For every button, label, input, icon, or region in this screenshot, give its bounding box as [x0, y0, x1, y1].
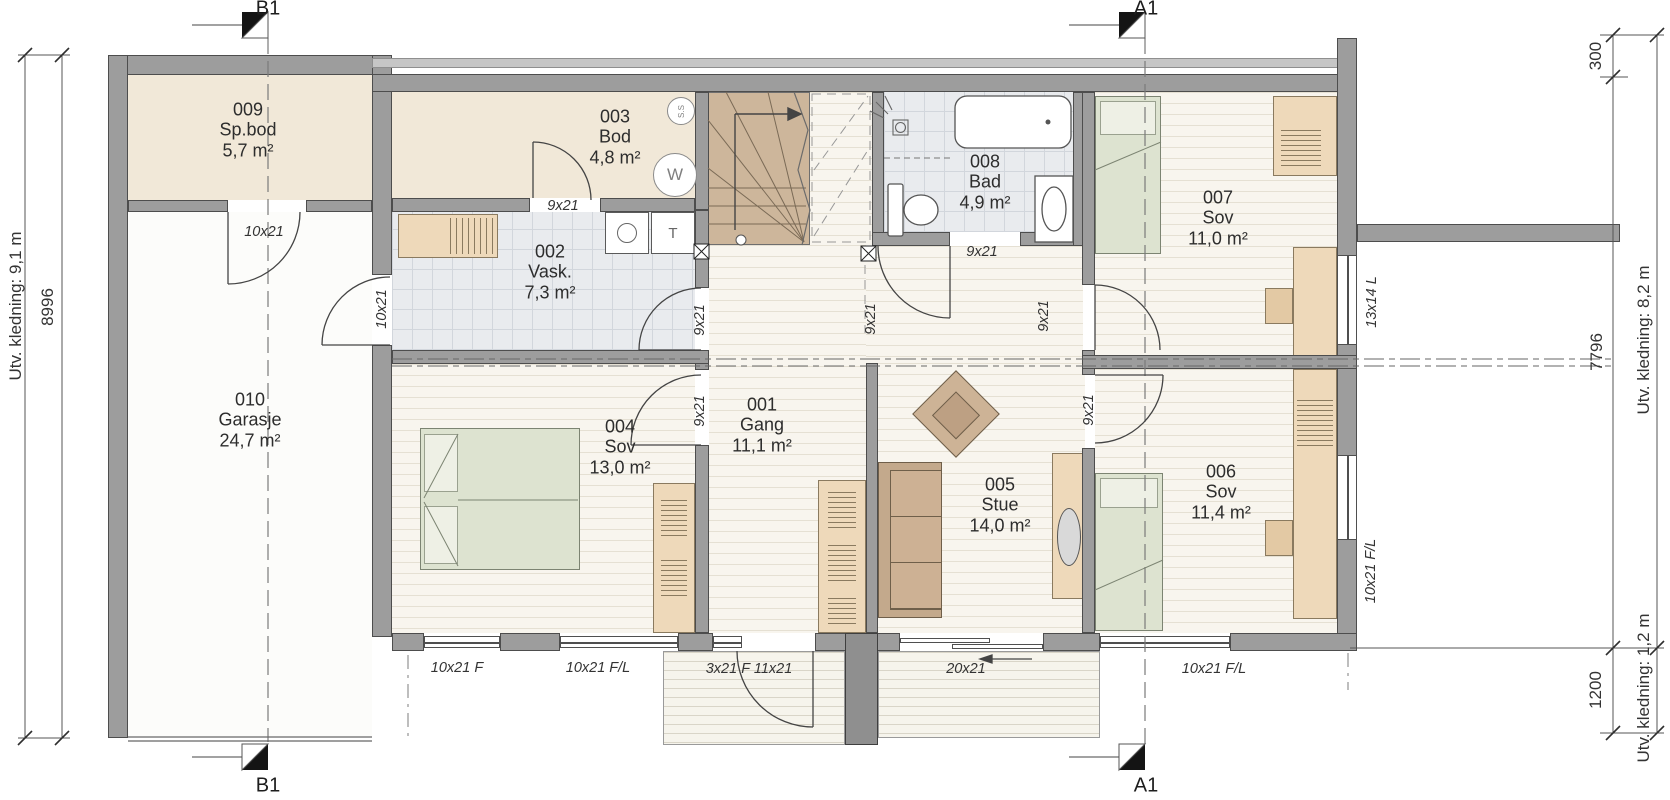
- dim-right-bottom: 1200: [1586, 671, 1606, 709]
- room-garage-floor: [128, 212, 372, 736]
- chair-006: [1265, 520, 1293, 556]
- spbod-door-opening: [228, 200, 306, 212]
- room-area: 14,0 m²: [969, 515, 1030, 535]
- section-label-b1-bottom: B1: [256, 775, 280, 798]
- tv: [1057, 508, 1081, 566]
- sofa-cushions: [890, 470, 942, 610]
- bod-bottom-wall-a: [392, 198, 530, 212]
- label-sov007-door: 9x21: [1036, 300, 1052, 331]
- water-heater-label: W: [667, 165, 683, 185]
- sov007-sov006-wall: [1082, 355, 1357, 369]
- room-name: Sp.bod: [219, 120, 276, 140]
- section-label-a1-top: A1: [1134, 0, 1158, 21]
- label-window-004-a: 10x21 F: [431, 660, 483, 676]
- label-window-006-bottom: 10x21 F/L: [1182, 661, 1247, 677]
- gang-sov007-wall-a: [1082, 92, 1095, 285]
- wardrobe-007-hatch: [1281, 130, 1321, 170]
- label-window-right-006: 10x21 F/L: [1363, 539, 1379, 604]
- bottom-wall-pier-e: [1043, 633, 1100, 651]
- chair-007: [1265, 288, 1293, 324]
- room-number: 006: [1191, 462, 1251, 482]
- room-number: 008: [959, 152, 1010, 172]
- marker-b1-bottom: [192, 744, 268, 770]
- label-slide-door: 20x21: [946, 661, 986, 677]
- wardrobe-gang-hatch-a: [828, 492, 856, 528]
- desk-007: [1293, 247, 1337, 357]
- room-number: 001: [732, 395, 792, 415]
- stue-left-wall: [866, 363, 878, 633]
- wardrobe-gang-hatch-c: [828, 598, 856, 628]
- stue-sov006-wall: [1082, 448, 1095, 633]
- room-number: 007: [1188, 188, 1248, 208]
- pillow-007: [1100, 101, 1156, 135]
- room-area: 4,8 m²: [589, 147, 640, 167]
- dim-right-top: 300: [1586, 42, 1606, 70]
- room-name: Garasje: [218, 410, 281, 430]
- window-13x14: [1337, 255, 1357, 345]
- room-area: 5,7 m²: [219, 140, 276, 160]
- dryer: T: [651, 212, 695, 254]
- sliding-door-leaf-b: [952, 644, 1043, 649]
- spbod-bottom-wall-b: [306, 200, 372, 212]
- suction-outlet-label: S.S: [677, 105, 686, 118]
- house-roof-overhang: [372, 58, 1357, 68]
- bod-bottom-wall-b: [600, 198, 695, 212]
- vask-counter-hatch: [450, 218, 494, 254]
- dryer-label: T: [668, 225, 677, 242]
- section-label-b1-top: B1: [256, 0, 280, 21]
- window-004-a: [424, 636, 500, 648]
- terrace-deck: [878, 651, 1100, 738]
- bottom-wall-a: [392, 633, 424, 651]
- window-004-b: [560, 636, 678, 648]
- stair-upper-zone-floor: [810, 92, 872, 245]
- room-name: Bod: [589, 127, 640, 147]
- house-top-wall: [372, 74, 1357, 92]
- room-label-sov006: 006 Sov 11,4 m²: [1191, 462, 1251, 523]
- room-label-stue: 005 Stue 14,0 m²: [969, 475, 1030, 536]
- label-sov004-door: 9x21: [692, 395, 708, 426]
- dim-right-outer-lower: Utv. kledning: 1,2 m: [1634, 614, 1654, 763]
- room-number: 004: [589, 417, 650, 437]
- desk-006-drawers-hatch: [1297, 400, 1333, 446]
- label-window-004-b: 10x21 F/L: [566, 660, 631, 676]
- entry-sidelight-window: [713, 636, 742, 648]
- room-label-bod: 003 Bod 4,8 m²: [589, 107, 640, 168]
- room-area: 24,7 m²: [218, 430, 281, 450]
- floor-plan: T ↯ S.S W: [0, 0, 1670, 800]
- dim-left-inner: 8996: [38, 288, 58, 326]
- pillow-004-b: [424, 506, 458, 564]
- label-garage-door: 10x21: [374, 289, 390, 329]
- room-bod-floor: [392, 92, 695, 198]
- bad-bottom-wall-a: [872, 232, 950, 246]
- room-name: Sov: [589, 437, 650, 457]
- garage-house-divider-lower: [372, 345, 392, 637]
- wardrobe-004-hatch-b: [661, 560, 687, 600]
- pillow-004-a: [424, 434, 458, 492]
- bottom-wall-pier-c: [678, 633, 713, 651]
- label-bod-door: 9x21: [547, 198, 578, 214]
- bad-left-wall: [872, 92, 884, 246]
- suction-outlet-symbol: S.S: [667, 97, 695, 125]
- room-name: Sov: [1191, 482, 1251, 502]
- room-name: Gang: [732, 415, 792, 435]
- room-label-sov007: 007 Sov 11,0 m²: [1188, 188, 1248, 249]
- room-label-spbod: 009 Sp.bod 5,7 m²: [219, 100, 276, 161]
- room-number: 009: [219, 100, 276, 120]
- room-number: 005: [969, 475, 1030, 495]
- room-number: 010: [218, 390, 281, 410]
- room-name: Vask.: [524, 262, 575, 282]
- porch-screen-wall: [845, 633, 878, 745]
- room-label-sov004: 004 Sov 13,0 m²: [589, 417, 650, 478]
- room-area: 11,1 m²: [732, 435, 792, 455]
- bottom-wall-corner: [1230, 633, 1357, 651]
- bottom-wall-pier-b: [500, 633, 560, 651]
- room-area: 11,4 m²: [1191, 502, 1251, 522]
- screen-wall-wing: [1357, 224, 1620, 242]
- room-name: Sov: [1188, 208, 1248, 228]
- room-area: 4,9 m²: [959, 192, 1010, 212]
- garage-left-wall: [108, 55, 128, 738]
- room-area: 13,0 m²: [589, 457, 650, 477]
- dim-right-middle: 7796: [1587, 333, 1607, 371]
- label-bad-door: 9x21: [966, 244, 997, 260]
- room-label-bad: 008 Bad 4,9 m²: [959, 152, 1010, 213]
- dim-right-outer-upper: Utv. kledning: 8,2 m: [1634, 266, 1654, 415]
- label-vask-door: 9x21: [692, 304, 708, 335]
- label-sov006-door: 9x21: [1081, 394, 1097, 425]
- window-006-bottom: [1100, 636, 1230, 648]
- marker-a1-bottom: [1069, 744, 1145, 770]
- spine-wall-d: [695, 445, 709, 633]
- label-hall-door: 9x21: [863, 303, 879, 334]
- spine-wall-b: [695, 210, 709, 288]
- garage-door-lines: [128, 737, 372, 741]
- section-label-a1-bottom: A1: [1134, 775, 1158, 798]
- washing-machine: [605, 212, 649, 254]
- room-label-garasje: 010 Garasje 24,7 m²: [218, 390, 281, 451]
- room-area: 7,3 m²: [524, 282, 575, 302]
- water-heater-symbol: W: [653, 153, 697, 197]
- label-window-13x14: 13x14 L: [1364, 276, 1380, 328]
- wardrobe-004-hatch-a: [661, 500, 687, 540]
- room-area: 11,0 m²: [1188, 228, 1248, 248]
- staircase: [708, 92, 810, 245]
- room-name: Stue: [969, 495, 1030, 515]
- label-spbod-door: 10x21: [244, 224, 284, 240]
- garage-top-wall: [108, 55, 392, 75]
- vask-sov004-wall: [392, 350, 709, 364]
- dim-left-outer: Utv. kledning: 9,1 m: [6, 232, 26, 381]
- room-number: 002: [524, 242, 575, 262]
- pillow-006: [1100, 478, 1158, 508]
- spine-wall-a: [695, 92, 709, 210]
- room-name: Bad: [959, 172, 1010, 192]
- room-number: 003: [589, 107, 640, 127]
- room-label-gang: 001 Gang 11,1 m²: [732, 395, 792, 456]
- label-entry-door: 3x21 F 11x21: [706, 661, 793, 677]
- window-right-006: [1337, 455, 1357, 540]
- room-label-vask: 002 Vask. 7,3 m²: [524, 242, 575, 303]
- spbod-bottom-wall-a: [128, 200, 228, 212]
- sliding-door-leaf-a: [900, 638, 990, 643]
- wardrobe-gang-hatch-b: [828, 545, 856, 581]
